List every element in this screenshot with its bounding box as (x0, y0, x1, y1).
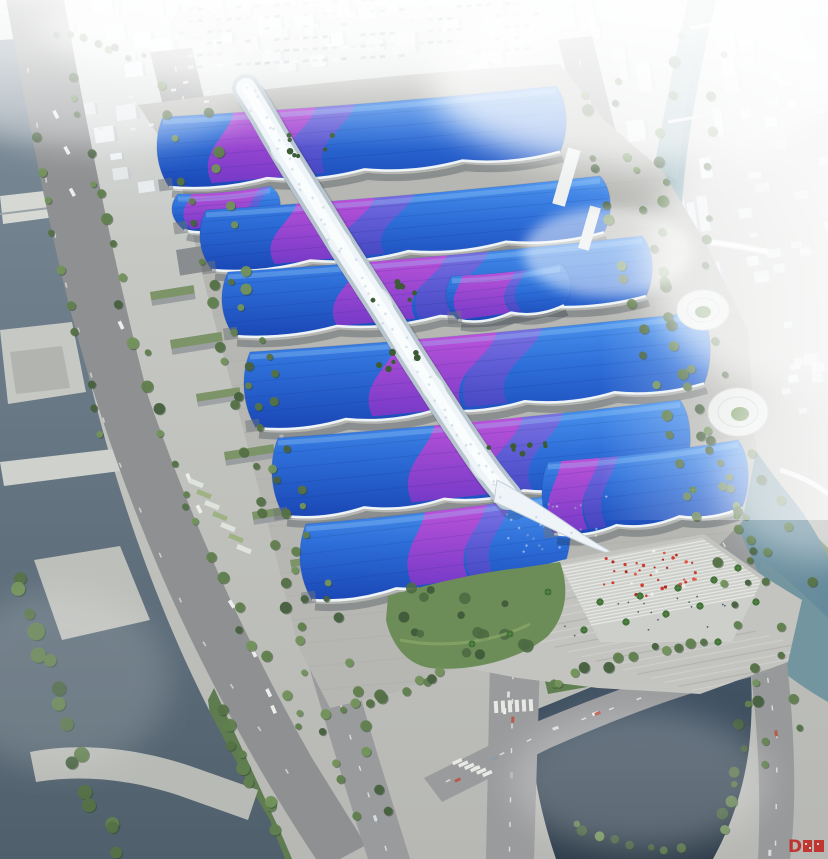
rendering-scene: D (0, 0, 828, 859)
watermark-glyph (814, 840, 824, 852)
watermark-letter: D (788, 837, 802, 857)
aerial-rendering: D (0, 0, 828, 859)
watermark-glyph (803, 840, 812, 852)
